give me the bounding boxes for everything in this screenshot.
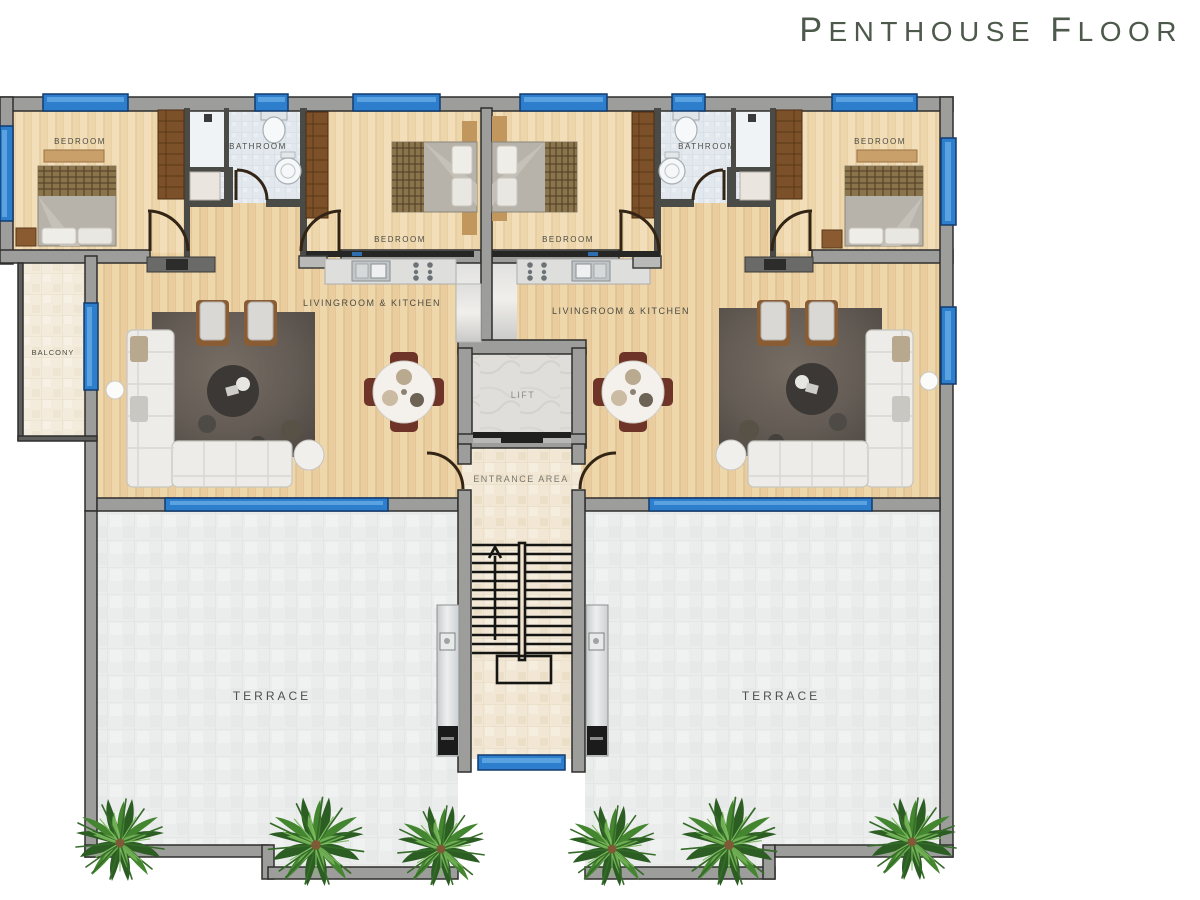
svg-text:TERRACE: TERRACE [742,689,820,703]
svg-text:BALCONY: BALCONY [32,348,75,357]
svg-text:BATHROOM: BATHROOM [678,142,736,151]
svg-text:ENTRANCE AREA: ENTRANCE AREA [473,474,569,484]
svg-text:BATHROOM: BATHROOM [229,142,287,151]
svg-text:BEDROOM: BEDROOM [854,137,906,146]
svg-text:LIVINGROOM & KITCHEN: LIVINGROOM & KITCHEN [552,306,690,316]
svg-text:LIFT: LIFT [511,390,536,400]
svg-text:BEDROOM: BEDROOM [374,235,426,244]
svg-text:BEDROOM: BEDROOM [54,137,106,146]
svg-text:TERRACE: TERRACE [233,689,311,703]
svg-text:LIVINGROOM & KITCHEN: LIVINGROOM & KITCHEN [303,298,441,308]
svg-text:BEDROOM: BEDROOM [542,235,594,244]
svg-text:PENTHOUSE FLOOR: PENTHOUSE FLOOR [799,11,1183,49]
